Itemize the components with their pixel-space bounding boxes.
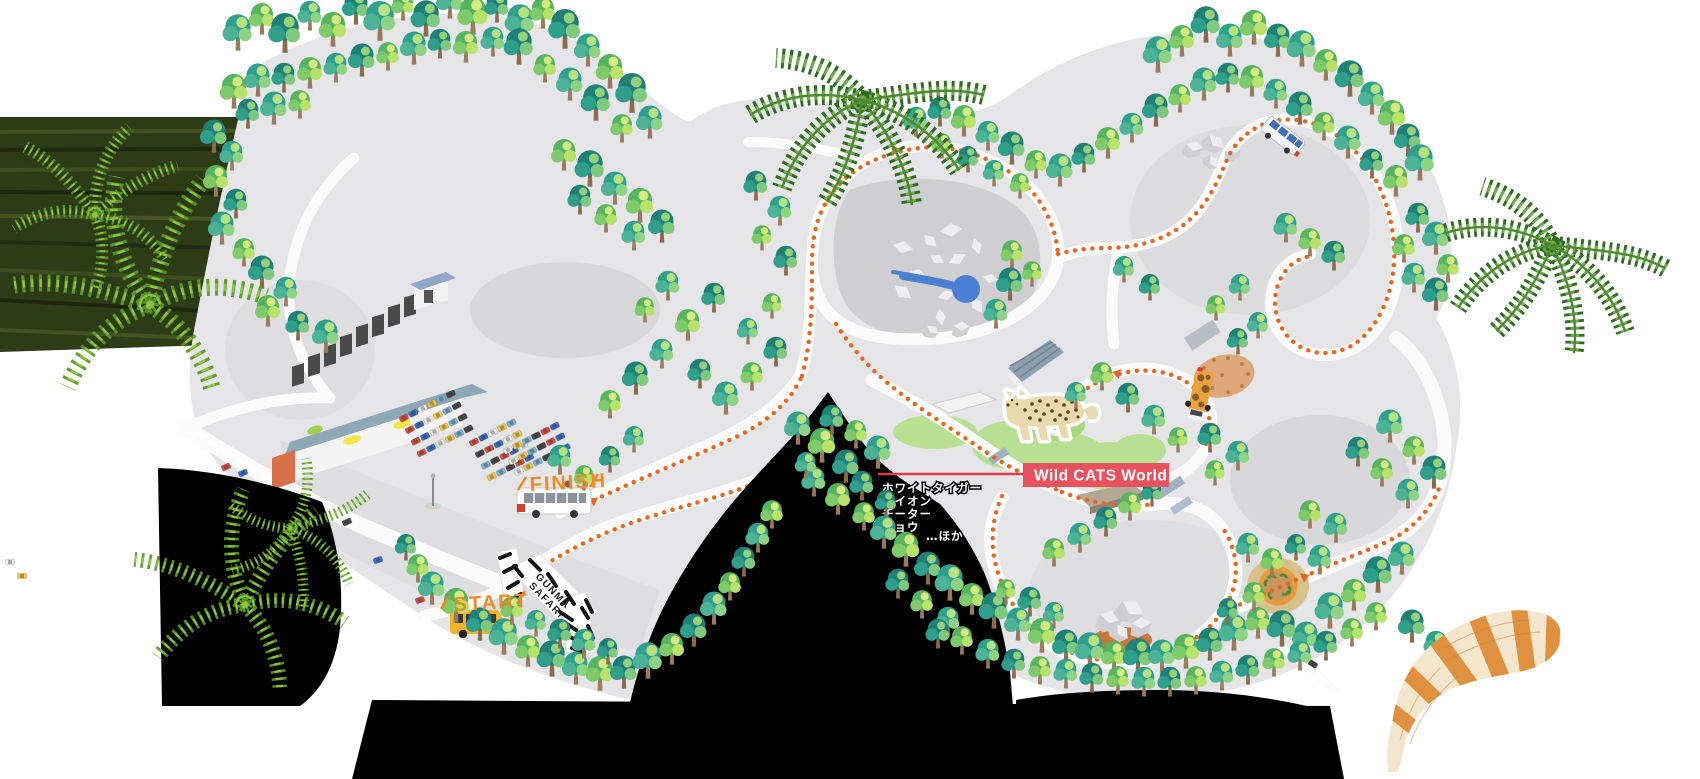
animal-item-1: ホワイトタイガー [882, 481, 982, 495]
palm-right-icon [1425, 181, 1674, 370]
map-svg: GUNMA SAFARI ホワイトタイガー ライオン チーター ヒョウ …ほか [0, 0, 1700, 779]
parking-car-icon [18, 573, 27, 579]
start-label: START [441, 590, 529, 616]
safari-park-map: GUNMA SAFARI ホワイトタイガー ライオン チーター ヒョウ …ほか [0, 0, 1700, 779]
animal-list-more: …ほか [926, 529, 964, 543]
tree-icon [297, 1, 321, 30]
parking-car-icon [6, 559, 15, 565]
tree-icon [223, 14, 252, 50]
finish-text: FINISH [529, 470, 608, 496]
finish-label: FINISH [518, 470, 608, 496]
area-label-text: Wild CATS World [1034, 468, 1167, 485]
red-panda-tail-icon [1367, 600, 1561, 772]
area-label-flag[interactable]: Wild CATS World [1023, 463, 1169, 487]
tree-icon [1398, 610, 1425, 643]
